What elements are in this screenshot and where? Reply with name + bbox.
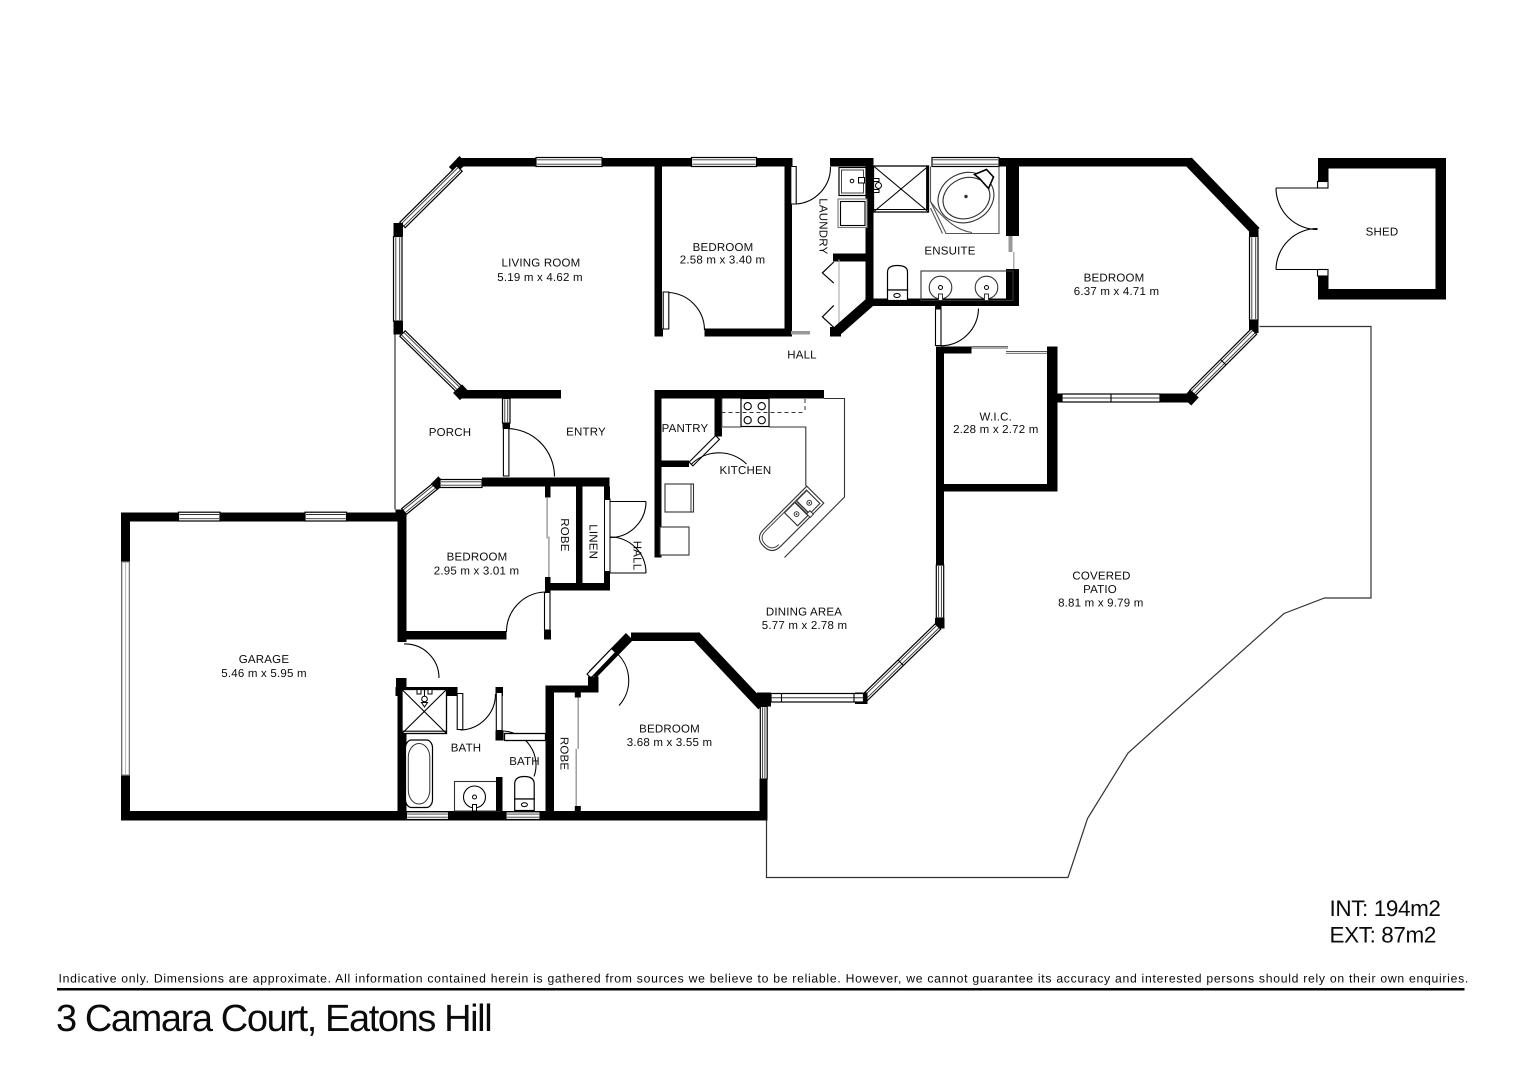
svg-text:BATH: BATH <box>509 756 540 768</box>
svg-text:2.58 m x 3.40 m: 2.58 m x 3.40 m <box>680 255 765 267</box>
svg-text:EXT: 87m2: EXT: 87m2 <box>1330 923 1436 948</box>
svg-text:BEDROOM: BEDROOM <box>1084 273 1145 285</box>
svg-text:PORCH: PORCH <box>429 427 472 439</box>
svg-text:BEDROOM: BEDROOM <box>693 242 754 254</box>
svg-text:LAUNDRY: LAUNDRY <box>817 198 829 254</box>
svg-text:BEDROOM: BEDROOM <box>447 552 508 564</box>
svg-text:HALL: HALL <box>631 541 643 571</box>
svg-text:ROBE: ROBE <box>558 518 570 552</box>
svg-text:5.77 m x 2.78 m: 5.77 m x 2.78 m <box>762 620 847 632</box>
svg-text:SHED: SHED <box>1366 227 1399 239</box>
svg-text:Indicative only. Dimensions ar: Indicative only. Dimensions are approxim… <box>59 972 1470 986</box>
svg-text:LINEN: LINEN <box>587 524 599 559</box>
svg-text:COVERED: COVERED <box>1072 571 1130 583</box>
svg-text:ROBE: ROBE <box>557 737 569 771</box>
svg-text:3.68 m x 3.55 m: 3.68 m x 3.55 m <box>627 737 712 749</box>
svg-text:W.I.C.: W.I.C. <box>980 412 1013 424</box>
svg-text:5.46 m x 5.95 m: 5.46 m x 5.95 m <box>221 668 306 680</box>
svg-text:BATH: BATH <box>451 743 482 755</box>
svg-text:2.28 m x 2.72 m: 2.28 m x 2.72 m <box>953 424 1038 436</box>
svg-text:LIVING ROOM: LIVING ROOM <box>502 258 581 270</box>
svg-text:PATIO: PATIO <box>1083 584 1117 596</box>
svg-text:3 Camara Court, Eatons Hill: 3 Camara Court, Eatons Hill <box>56 998 491 1040</box>
svg-text:INT: 194m2: INT: 194m2 <box>1330 896 1441 921</box>
svg-text:2.95 m x 3.01 m: 2.95 m x 3.01 m <box>434 566 519 578</box>
svg-text:6.37 m x 4.71 m: 6.37 m x 4.71 m <box>1074 286 1159 298</box>
svg-text:DINING AREA: DINING AREA <box>766 607 842 619</box>
svg-text:8.81 m x 9.79 m: 8.81 m x 9.79 m <box>1058 598 1143 610</box>
svg-text:GARAGE: GARAGE <box>239 654 290 666</box>
svg-text:HALL: HALL <box>787 350 817 362</box>
svg-text:KITCHEN: KITCHEN <box>720 465 772 477</box>
svg-text:BEDROOM: BEDROOM <box>639 724 700 736</box>
svg-text:PANTRY: PANTRY <box>662 423 709 435</box>
svg-text:ENTRY: ENTRY <box>566 427 606 439</box>
svg-text:5.19 m x 4.62 m: 5.19 m x 4.62 m <box>497 272 582 284</box>
svg-text:ENSUITE: ENSUITE <box>924 246 975 258</box>
